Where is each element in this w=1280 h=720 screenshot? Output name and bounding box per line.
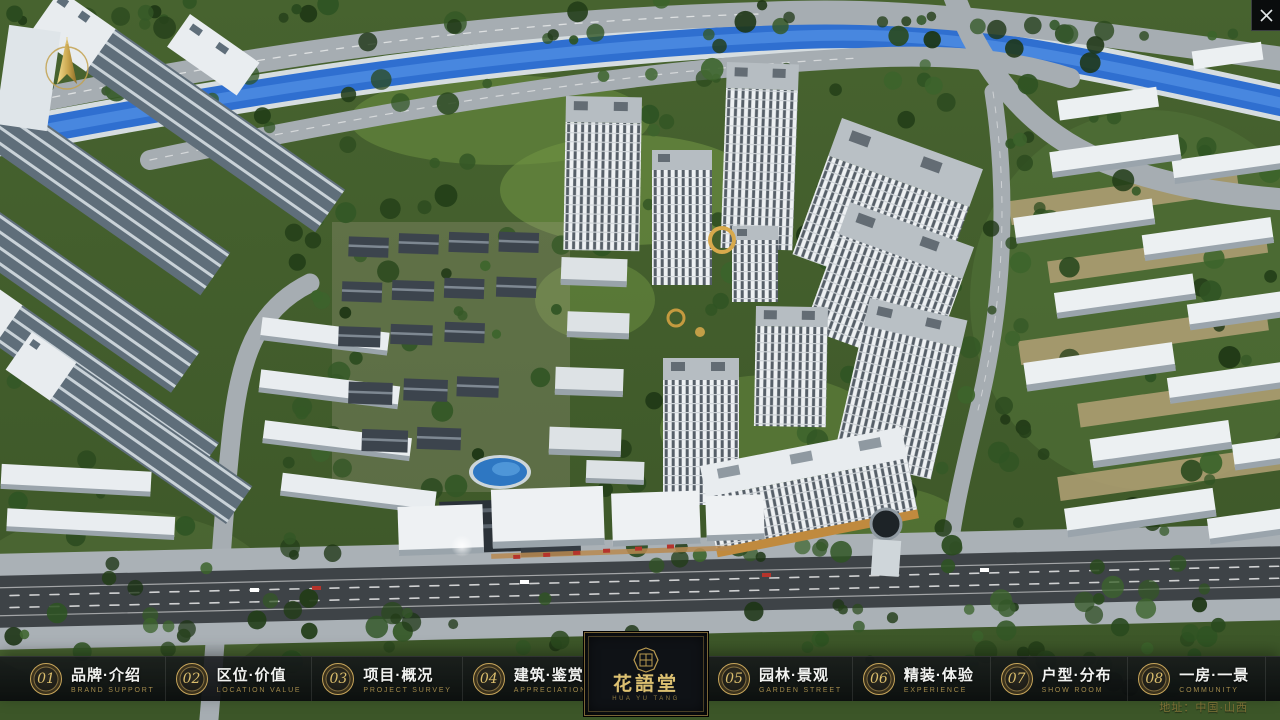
brand-logo-panel[interactable]: 花語堂 HUA YU TANG — [584, 632, 708, 716]
menu-label: 精装·体验 — [904, 664, 974, 685]
light-flare — [451, 535, 473, 557]
menu-label: 品牌·介绍 — [71, 664, 155, 685]
menu-sublabel: COMMUNITY — [1179, 687, 1249, 694]
menu-badge-03: 03 — [322, 663, 354, 695]
menu-item-floorplan[interactable]: 07 户型·分布 SHOW ROOM — [991, 657, 1129, 701]
menu-badge-05: 05 — [718, 663, 750, 695]
menu-badge-01: 01 — [30, 663, 62, 695]
menu-label: 一房·一景 — [1179, 664, 1249, 685]
menu-badge-04: 04 — [473, 663, 505, 695]
north-arrow-icon — [36, 32, 98, 100]
entrance-plaza — [871, 509, 901, 577]
brand-name: 花語堂 — [613, 675, 679, 695]
menu-sublabel: BRAND SUPPORT — [71, 687, 155, 694]
close-icon — [1260, 9, 1273, 22]
compass-north-indicator — [36, 32, 98, 100]
menu-label: 户型·分布 — [1042, 664, 1112, 685]
site-aerial-view — [0, 0, 1280, 720]
menu-item-view[interactable]: 08 一房·一景 COMMUNITY — [1128, 657, 1266, 701]
menu-item-brand[interactable]: 01 品牌·介绍 BRAND SUPPORT — [20, 657, 166, 701]
menu-item-garden[interactable]: 05 园林·景观 GARDEN STREET — [708, 657, 853, 701]
project-address: 地址：中国·山西 — [1159, 699, 1248, 715]
menu-item-architecture[interactable]: 04 建筑·鉴赏 APPRECIATION — [463, 657, 598, 701]
menu-sublabel: APPRECIATION — [514, 687, 587, 694]
menu-group-left: 01 品牌·介绍 BRAND SUPPORT 02 区位·价值 LOCATION… — [20, 657, 582, 701]
close-button[interactable] — [1251, 0, 1280, 31]
menu-sublabel: LOCATION VALUE — [217, 687, 302, 694]
menu-badge-07: 07 — [1001, 663, 1033, 695]
menu-label: 区位·价值 — [217, 664, 302, 685]
menu-sublabel: EXPERIENCE — [904, 687, 974, 694]
menu-badge-02: 02 — [176, 663, 208, 695]
menu-sublabel: PROJECT SURVEY — [363, 687, 451, 694]
menu-label: 项目·概况 — [363, 664, 451, 685]
menu-item-location[interactable]: 02 区位·价值 LOCATION VALUE — [166, 657, 313, 701]
brand-name-pinyin: HUA YU TANG — [612, 696, 680, 702]
menu-badge-08: 08 — [1138, 663, 1170, 695]
menu-sublabel: SHOW ROOM — [1042, 687, 1112, 694]
menu-item-project[interactable]: 03 项目·概况 PROJECT SURVEY — [312, 657, 462, 701]
menu-label: 建筑·鉴赏 — [514, 664, 587, 685]
swimming-pool — [469, 455, 531, 489]
menu-item-interior[interactable]: 06 精装·体验 EXPERIENCE — [853, 657, 991, 701]
menu-sublabel: GARDEN STREET — [759, 687, 842, 694]
menu-badge-06: 06 — [863, 663, 895, 695]
menu-group-right: 05 园林·景观 GARDEN STREET 06 精装·体验 EXPERIEN… — [708, 657, 1266, 701]
menu-label: 园林·景观 — [759, 664, 842, 685]
seal-icon — [633, 647, 659, 673]
